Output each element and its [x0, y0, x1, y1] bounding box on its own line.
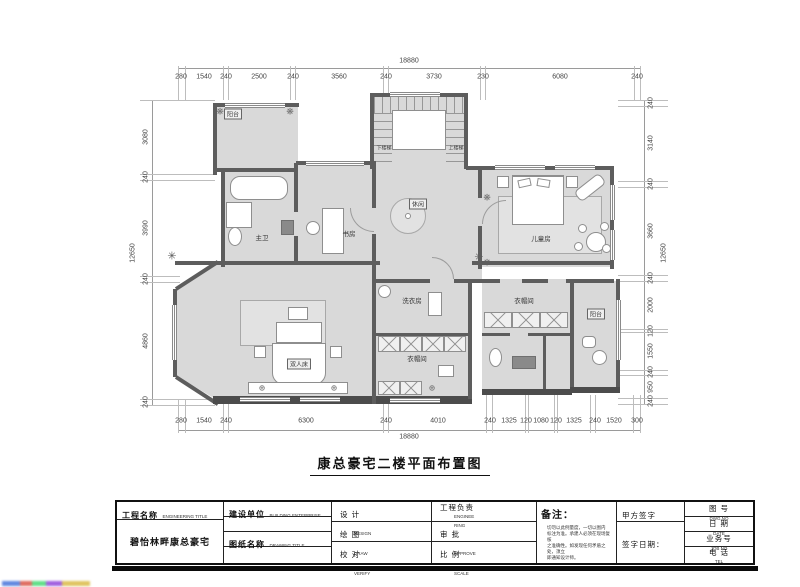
approve-label: 审 批 — [440, 530, 460, 539]
sign-label: 甲方签字 — [622, 511, 656, 520]
window — [300, 397, 340, 402]
desk — [322, 208, 344, 254]
dim-tick — [618, 398, 668, 399]
dim-label: 120 — [550, 418, 562, 425]
tb-date-cell: 日 期 DATE — [685, 517, 753, 532]
wardrobe-cell — [400, 336, 422, 352]
shower-tray — [226, 202, 252, 228]
dresser — [438, 365, 454, 377]
window — [306, 161, 364, 166]
tb-col-numbers: 图 号 DWG.NO 日 期 DATE 业务号 JOB NO 电 话 TEL — [685, 502, 753, 563]
tb-col-roles2: 工程负责 ENGINEE RING 审 批 APPROVE 比 例 SCALE — [432, 502, 537, 563]
dim-label: 240 — [220, 74, 232, 81]
watermark-artifact — [2, 581, 90, 586]
draft-label-en: DRAW — [354, 551, 368, 556]
tb-project-header: 工程名称 ENGINEERING TITLE — [117, 502, 223, 520]
dim-label: 240 — [631, 74, 643, 81]
notes-label: 备注： — [541, 510, 574, 521]
dim-tick — [618, 281, 668, 282]
dim-tick — [485, 66, 486, 100]
door-opening — [500, 279, 522, 283]
wall — [570, 387, 620, 393]
dim-tick — [140, 100, 215, 101]
room-label-lounge: 休闲 — [409, 199, 427, 210]
stair-landing — [392, 110, 446, 150]
tb-draft-cell: 绘 图 DRAW — [332, 522, 431, 542]
dim-tick — [140, 174, 215, 175]
room-label-closet-bottom: 衣帽间 — [407, 353, 427, 363]
dim-tick — [595, 395, 596, 433]
speaker-icon: ⊕ — [259, 384, 266, 393]
nightstand — [497, 176, 509, 188]
dim-tick — [557, 395, 558, 433]
tb-sign-cell: 甲方签字 — [617, 502, 684, 522]
approve-label-en: APPROVE — [454, 551, 476, 556]
dim-total-left: 12650 — [130, 243, 137, 262]
tb-col-client: 建设单位 BUILDING ENTERPRISE 图纸名称 DRAWING TI… — [224, 502, 332, 563]
dim-label: 240 — [380, 74, 392, 81]
dim-label: 2000 — [648, 297, 655, 313]
dim-tick — [228, 66, 229, 100]
dim-label: 1325 — [566, 418, 582, 425]
design-label: 设 计 — [340, 510, 360, 519]
dim-label: 280 — [175, 74, 187, 81]
desk-chair — [306, 221, 320, 235]
wardrobe-cell — [378, 381, 400, 395]
dim-line-bottom — [178, 430, 640, 431]
verify-label-en: VERIFY — [354, 571, 370, 576]
wall — [213, 103, 217, 175]
dim-label: 3080 — [143, 129, 150, 145]
window — [610, 185, 615, 220]
drawing-label-en: DRAWING TITLE — [269, 543, 304, 548]
dim-tick — [618, 100, 668, 101]
dim-label: 240 — [648, 366, 655, 378]
wardrobe-cell — [512, 312, 540, 328]
wardrobe-cell — [540, 312, 568, 328]
jobno-label-en: JOB NO — [711, 546, 728, 551]
dim-label: 1325 — [501, 418, 517, 425]
dim-label: 240 — [648, 272, 655, 284]
title-block-heavy-rule — [112, 566, 758, 571]
dim-label: 4860 — [143, 333, 150, 349]
dwgno-label: 图 号 — [709, 504, 729, 513]
tb-client-cell: 建设单位 BUILDING ENTERPRISE — [224, 502, 331, 517]
dim-tick — [634, 66, 635, 100]
dim-label: 240 — [648, 395, 655, 407]
draft-label: 绘 图 — [340, 530, 360, 539]
door-opening — [380, 261, 472, 265]
wall — [213, 168, 298, 172]
dim-line-top — [178, 68, 640, 69]
dim-tick — [640, 66, 641, 100]
window — [495, 165, 545, 170]
room-label-laundry: 洗衣房 — [402, 295, 422, 305]
laundry-sink — [378, 285, 391, 298]
door-opening — [548, 279, 566, 283]
dim-tick — [618, 181, 668, 182]
dim-total-top: 18880 — [399, 58, 418, 65]
lead-label: 工程负责 — [440, 503, 474, 512]
wardrobe-cell — [484, 312, 512, 328]
dim-tick — [383, 400, 384, 433]
stairs-down-label: 下楼梯 — [376, 145, 391, 152]
dim-label: 3660 — [648, 223, 655, 239]
dim-tick — [178, 66, 179, 100]
door-opening — [430, 279, 454, 283]
wardrobe-cell — [422, 336, 444, 352]
wall — [370, 93, 374, 169]
dim-tick — [633, 395, 634, 433]
dim-label: 2500 — [251, 74, 267, 81]
dim-label: 1520 — [606, 418, 622, 425]
dim-line-left — [152, 100, 153, 405]
dim-total-right: 12650 — [661, 243, 668, 262]
dim-label: 120 — [520, 418, 532, 425]
dim-label: 1540 — [196, 74, 212, 81]
wall — [464, 93, 468, 169]
dim-tick — [618, 187, 668, 188]
dim-tick — [140, 405, 215, 406]
tb-drawing-cell: 图纸名称 DRAWING TITLE — [224, 532, 331, 547]
dim-tick — [388, 400, 389, 433]
window — [555, 165, 595, 170]
stair-treads — [446, 113, 464, 165]
window — [616, 300, 621, 360]
title-block: 工程名称 ENGINEERING TITLE 碧怡林畔康总豪宅 建设单位 BUI… — [115, 500, 755, 565]
plant-icon: ❋ — [216, 108, 224, 117]
vanity — [281, 220, 294, 235]
vanity — [512, 356, 536, 369]
room-label-closet-right: 衣帽间 — [514, 295, 534, 305]
dim-label: 1080 — [533, 418, 549, 425]
lead-label-en1: ENGINEE — [454, 514, 474, 519]
bed-bench — [276, 322, 322, 344]
dim-label: 240 — [220, 418, 232, 425]
stairs-up-label: 上楼梯 — [448, 145, 463, 152]
tb-approve-cell: 审 批 APPROVE — [432, 522, 536, 542]
dim-label: 3560 — [331, 74, 347, 81]
dim-tick — [618, 275, 668, 276]
wall — [374, 279, 614, 283]
room-label-study: 书房 — [343, 228, 356, 238]
dim-label: 6300 — [298, 418, 314, 425]
nightstand — [254, 346, 266, 358]
tb-col-roles1: 设 计 DESIGN 绘 图 DRAW 校 对 VERIFY — [332, 502, 432, 563]
plant-icon: ❋ — [483, 194, 491, 203]
dim-tick — [185, 66, 186, 100]
stair-treads — [374, 113, 392, 165]
dim-tick — [618, 106, 668, 107]
window — [610, 230, 615, 260]
dim-label: 240 — [143, 171, 150, 183]
toilet — [489, 348, 502, 367]
picture-frame — [288, 307, 308, 320]
dim-tick — [554, 395, 555, 433]
wall — [221, 172, 225, 267]
dim-tick — [228, 400, 229, 433]
dim-label: 3140 — [648, 135, 655, 151]
door-opening — [510, 333, 528, 336]
dim-tick — [295, 66, 296, 100]
room-hallway2 — [545, 335, 572, 390]
wall — [570, 279, 574, 391]
dim-label: 240 — [380, 418, 392, 425]
wardrobe-cell — [444, 336, 466, 352]
dim-tick — [618, 404, 668, 405]
wall — [372, 265, 376, 404]
window — [225, 103, 285, 108]
ceiling-lamp-icon: ⊕ — [429, 384, 436, 393]
project-name: 碧怡林畔康总豪宅 — [130, 535, 210, 548]
wardrobe-cell — [400, 381, 422, 395]
window — [390, 398, 440, 403]
dim-label: 240 — [143, 396, 150, 408]
tb-design-cell: 设 计 DESIGN — [332, 502, 431, 522]
kids-chair — [574, 242, 583, 251]
window — [172, 305, 177, 360]
room-hall — [374, 167, 482, 283]
balcony-table — [592, 350, 607, 365]
dim-label: 240 — [648, 97, 655, 109]
door-opening — [294, 212, 298, 236]
dim-tick — [618, 370, 668, 371]
dim-tick — [618, 329, 668, 330]
dim-tick — [140, 399, 215, 400]
dim-label: 3730 — [426, 74, 442, 81]
dim-label: 3990 — [143, 220, 150, 236]
dim-label: 240 — [287, 74, 299, 81]
plant-icon: ❋ — [286, 108, 294, 117]
dim-tick — [528, 395, 529, 433]
balcony-chair — [582, 336, 596, 348]
wall — [374, 333, 470, 336]
window — [240, 397, 290, 402]
notes-line: 即通知设计师。 — [547, 555, 614, 561]
tb-project-name-cell: 碧怡林畔康总豪宅 — [117, 520, 223, 563]
notes-text: 切勿以此例量度，一切以图内 标注为准。承建人必须在现场复核 之准确性。如发现任何… — [541, 525, 614, 561]
dim-label: 240 — [648, 178, 655, 190]
project-label: 工程名称 — [122, 511, 158, 520]
project-label-en: ENGINEERING TITLE — [162, 514, 207, 519]
sign-date-label: 签字日期： — [622, 540, 665, 549]
bed-label: 双人床 — [287, 359, 311, 370]
dim-tick — [618, 332, 668, 333]
dim-label: 240 — [143, 273, 150, 285]
notes-line: 标注为准。承建人必须在现场复核 — [547, 531, 614, 543]
tb-dwgno-cell: 图 号 DWG.NO — [685, 502, 753, 517]
dim-label: 1540 — [196, 418, 212, 425]
hall-rug-center — [405, 213, 411, 219]
notes-line: 之准确性。如发现任何矛盾之处，须立 — [547, 543, 614, 555]
dim-tick — [492, 395, 493, 433]
tb-col-notes: 备注： 切勿以此例量度，一切以图内 标注为准。承建人必须在现场复核 之准确性。如… — [537, 502, 617, 563]
laundry-counter — [428, 292, 442, 316]
room-label-master-bath: 主卫 — [256, 232, 269, 242]
date-label: 日 期 — [709, 519, 729, 528]
wardrobe-cell — [378, 336, 400, 352]
nightstand — [330, 346, 342, 358]
wall — [543, 333, 546, 393]
dim-tick — [223, 66, 224, 100]
jobno-label: 业务号 — [706, 534, 732, 543]
kids-chair — [600, 222, 609, 231]
dim-tick — [486, 395, 487, 433]
dim-label: 280 — [175, 418, 187, 425]
window — [390, 92, 440, 97]
dim-label: 240 — [589, 418, 601, 425]
wall — [468, 281, 472, 399]
dim-tick — [223, 400, 224, 433]
kids-chair — [578, 224, 587, 233]
nightstand — [566, 176, 578, 188]
dim-label: 300 — [631, 418, 643, 425]
tb-col-signature: 甲方签字 签字日期： — [617, 502, 685, 563]
tel-label-en: TEL — [715, 559, 723, 564]
drawing-label: 图纸名称 — [229, 540, 265, 549]
tb-col-project: 工程名称 ENGINEERING TITLE 碧怡林畔康总豪宅 — [117, 502, 224, 563]
dim-label: 6080 — [552, 74, 568, 81]
drawing-sheet: 18880 280 1540 240 2500 240 3560 240 373… — [0, 0, 800, 587]
dim-tick — [290, 66, 291, 100]
room-balcony-bottom — [572, 281, 620, 389]
dim-label: 950 — [648, 381, 655, 393]
bathtub — [230, 176, 288, 200]
wall — [213, 396, 375, 404]
speaker-icon: ⊕ — [331, 384, 338, 393]
tb-lead-cell: 工程负责 ENGINEE RING — [432, 502, 536, 522]
dim-label: 120 — [648, 325, 655, 337]
dim-tick — [480, 66, 481, 100]
dim-total-bottom: 18880 — [399, 434, 418, 441]
dim-tick — [525, 395, 526, 433]
dim-tick — [140, 180, 215, 181]
tb-jobno-cell: 业务号 JOB NO — [685, 532, 753, 547]
room-label-balcony-top: 阳台 — [224, 109, 242, 120]
dim-label: 240 — [484, 418, 496, 425]
drawing-title: 康总豪宅二楼平面布置图 — [310, 453, 490, 476]
room-label-kids: 儿童房 — [531, 233, 551, 243]
scale-label-en: SCALE — [454, 571, 469, 576]
dim-tick — [640, 395, 641, 433]
room-label-balcony-bottom: 阳台 — [587, 309, 605, 320]
dim-label: 4010 — [430, 418, 446, 425]
wall — [482, 389, 572, 395]
dim-tick — [590, 395, 591, 433]
dim-line-right — [644, 100, 645, 404]
tb-empty-cell — [224, 517, 331, 532]
dim-label: 230 — [477, 74, 489, 81]
dim-tick — [618, 375, 668, 376]
dim-label: 1550 — [648, 343, 655, 359]
toilet — [228, 227, 242, 246]
